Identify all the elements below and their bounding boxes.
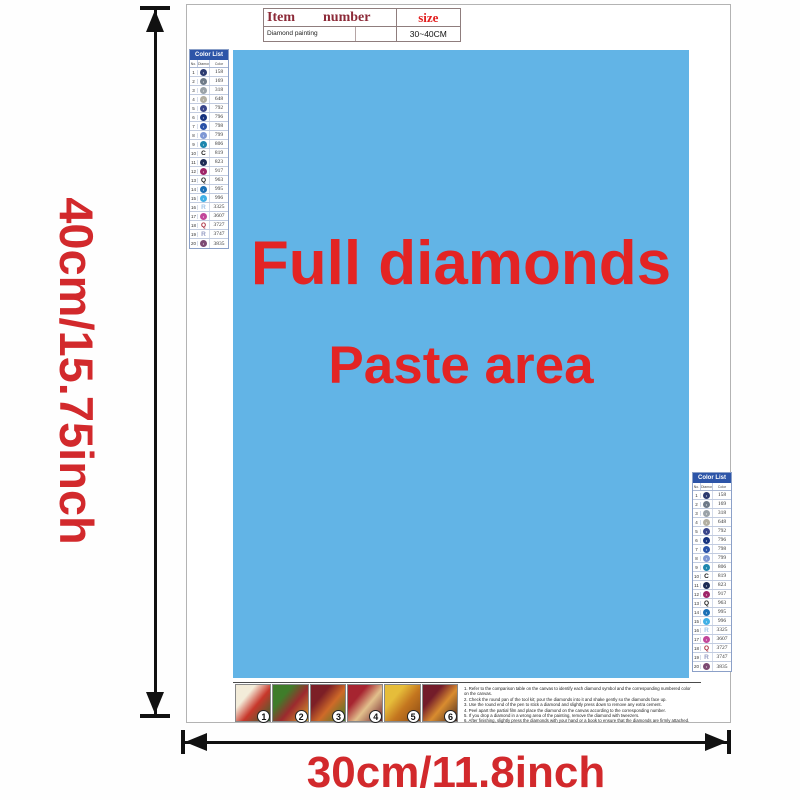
- column-diamond-label: Diamond: [701, 483, 713, 490]
- column-color-label: Color: [713, 483, 731, 490]
- color-row: 1•158: [190, 68, 228, 77]
- paste-area-title-line2: Paste area: [233, 335, 689, 396]
- dmc-color-code: 917: [210, 168, 228, 174]
- color-row-number: 5: [693, 529, 701, 534]
- diamond-symbol-icon: •: [701, 590, 713, 598]
- color-row: 6•796: [693, 536, 731, 545]
- color-row: 13Q963: [190, 176, 228, 185]
- diamond-symbol-icon: •: [701, 608, 713, 616]
- info-table-header-row: Item number size: [264, 9, 460, 27]
- diamond-symbol-icon: Q: [198, 176, 210, 184]
- diamond-letter-symbol: Q: [201, 176, 206, 185]
- color-row-number: 18: [693, 646, 701, 651]
- dmc-color-code: 648: [713, 519, 731, 525]
- color-row: 16R3325: [693, 626, 731, 635]
- step-thumbnail: 2: [272, 684, 308, 722]
- dmc-color-code: 3835: [210, 241, 228, 247]
- diamond-color-dot: •: [200, 186, 207, 193]
- step-number-badge: 6: [444, 710, 457, 723]
- diamond-color-dot: •: [703, 510, 710, 517]
- dmc-color-code: 796: [713, 537, 731, 543]
- color-row-number: 12: [190, 169, 198, 174]
- product-dimension-diagram: 40cm/15.75inch Item number size Diamond …: [0, 0, 800, 800]
- color-row: 10C819: [693, 572, 731, 581]
- color-row: 11•823: [190, 158, 228, 167]
- color-row: 7•798: [693, 545, 731, 554]
- color-row: 2•169: [693, 500, 731, 509]
- dmc-color-code: 796: [210, 114, 228, 120]
- diamond-color-dot: •: [200, 105, 207, 112]
- diamond-color-dot: •: [200, 240, 207, 247]
- diamond-symbol-icon: •: [701, 635, 713, 643]
- diamond-color-dot: •: [703, 582, 710, 589]
- bottom-strip-divider: [233, 682, 701, 683]
- diamond-color-dot: •: [200, 69, 207, 76]
- color-row-number: 7: [190, 124, 198, 129]
- color-list-left: Color List No. Diamond Color 1•1582•1693…: [189, 49, 229, 249]
- color-row-number: 15: [693, 619, 701, 624]
- color-row-number: 13: [190, 178, 198, 183]
- diamond-color-dot: •: [200, 141, 207, 148]
- color-row-number: 4: [190, 97, 198, 102]
- dmc-color-code: 996: [713, 618, 731, 624]
- diamond-letter-symbol: C: [704, 572, 709, 581]
- color-row-number: 16: [190, 205, 198, 210]
- diamond-symbol-icon: •: [198, 86, 210, 94]
- diamond-symbol-icon: R: [701, 626, 713, 634]
- color-row-number: 11: [190, 160, 198, 165]
- diamond-color-dot: •: [703, 609, 710, 616]
- color-row: 4•648: [190, 95, 228, 104]
- item-size-cell: 30~40CM: [396, 27, 460, 41]
- diamond-symbol-icon: •: [198, 95, 210, 103]
- color-row-number: 8: [693, 556, 701, 561]
- diamond-symbol-icon: •: [701, 545, 713, 553]
- diamond-symbol-icon: Q: [198, 221, 210, 229]
- color-list-title: Color List: [693, 473, 731, 483]
- color-list-title: Color List: [190, 50, 228, 60]
- diamond-color-dot: •: [200, 123, 207, 130]
- diamond-symbol-icon: •: [198, 131, 210, 139]
- color-row: 5•792: [190, 104, 228, 113]
- diamond-letter-symbol: R: [704, 626, 709, 635]
- color-row-number: 17: [693, 637, 701, 642]
- dmc-color-code: 963: [713, 600, 731, 606]
- color-row: 17•3607: [693, 635, 731, 644]
- diamond-symbol-icon: •: [701, 491, 713, 499]
- color-row-number: 6: [693, 538, 701, 543]
- color-row-number: 10: [693, 574, 701, 579]
- dmc-color-code: 995: [210, 186, 228, 192]
- color-row: 3•318: [693, 509, 731, 518]
- color-row: 3•318: [190, 86, 228, 95]
- color-row: 18Q3727: [693, 644, 731, 653]
- color-row: 15•996: [693, 617, 731, 626]
- diamond-letter-symbol: Q: [704, 644, 709, 653]
- color-list-rows: 1•1582•1693•3184•6485•7926•7967•7988•799…: [693, 491, 731, 671]
- color-row: 17•3607: [190, 212, 228, 221]
- diamond-letter-symbol: R: [201, 203, 206, 212]
- diamond-symbol-icon: •: [198, 158, 210, 166]
- full-diamond-paste-area: Full diamonds Paste area: [233, 50, 689, 678]
- diamond-color-dot: •: [200, 87, 207, 94]
- diamond-symbol-icon: •: [701, 563, 713, 571]
- info-table-body-row: Diamond painting 30~40CM: [264, 27, 460, 41]
- color-row-number: 1: [190, 70, 198, 75]
- step-thumbnail: 3: [310, 684, 346, 722]
- dmc-color-code: 3607: [713, 636, 731, 642]
- color-row: 13Q963: [693, 599, 731, 608]
- width-dimension-label: 30cm/11.8inch: [181, 748, 731, 798]
- column-diamond-label: Diamond: [198, 60, 210, 67]
- diamond-symbol-icon: •: [198, 122, 210, 130]
- diamond-symbol-icon: •: [198, 140, 210, 148]
- color-row-number: 12: [693, 592, 701, 597]
- dmc-color-code: 3727: [713, 645, 731, 651]
- color-row: 9•806: [190, 140, 228, 149]
- height-dimension-label: 40cm/15.75inch: [42, 41, 104, 701]
- item-info-table: Item number size Diamond painting 30~40C…: [263, 8, 461, 42]
- color-row-number: 17: [190, 214, 198, 219]
- diamond-color-dot: •: [200, 132, 207, 139]
- step-thumbnail: 4: [347, 684, 383, 722]
- diamond-color-dot: •: [703, 492, 710, 499]
- dmc-color-code: 963: [210, 177, 228, 183]
- arrow-down-head-icon: [146, 692, 164, 714]
- color-list-column-headers: No. Diamond Color: [693, 483, 731, 491]
- diamond-color-dot: •: [200, 96, 207, 103]
- color-row-number: 9: [190, 142, 198, 147]
- diamond-color-dot: •: [200, 213, 207, 220]
- diamond-symbol-icon: •: [701, 527, 713, 535]
- color-row-number: 9: [693, 565, 701, 570]
- dmc-color-code: 318: [713, 510, 731, 516]
- diamond-symbol-icon: •: [198, 113, 210, 121]
- color-row-number: 20: [693, 664, 701, 669]
- diamond-symbol-icon: •: [198, 104, 210, 112]
- diamond-symbol-icon: R: [198, 230, 210, 238]
- diamond-color-dot: •: [703, 555, 710, 562]
- dmc-color-code: 823: [210, 159, 228, 165]
- column-no-label: No.: [190, 60, 198, 67]
- dmc-color-code: 3607: [210, 213, 228, 219]
- diamond-symbol-icon: •: [701, 518, 713, 526]
- arrow-horizontal-line: [185, 741, 727, 744]
- color-list-rows: 1•1582•1693•3184•6485•7926•7967•7988•799…: [190, 68, 228, 248]
- diamond-symbol-icon: •: [701, 509, 713, 517]
- diamond-color-dot: •: [703, 537, 710, 544]
- color-row-number: 3: [693, 511, 701, 516]
- column-color-label: Color: [210, 60, 228, 67]
- step-thumbnail: 6: [422, 684, 458, 722]
- paste-area-title-line1: Full diamonds: [233, 228, 689, 299]
- column-no-label: No.: [693, 483, 701, 490]
- step-thumbnail: 5: [384, 684, 420, 722]
- diamond-symbol-icon: •: [701, 554, 713, 562]
- diamond-symbol-icon: C: [701, 572, 713, 580]
- color-row: 19R3747: [693, 653, 731, 662]
- diamond-symbol-icon: •: [701, 581, 713, 589]
- diamond-symbol-icon: R: [701, 653, 713, 661]
- dmc-color-code: 996: [210, 195, 228, 201]
- color-row-number: 1: [693, 493, 701, 498]
- diamond-color-dot: •: [703, 528, 710, 535]
- color-row-number: 3: [190, 88, 198, 93]
- arrow-bottom-cap: [140, 714, 170, 718]
- diamond-color-dot: •: [200, 195, 207, 202]
- dmc-color-code: 3747: [210, 231, 228, 237]
- diamond-color-dot: •: [200, 114, 207, 121]
- diamond-letter-symbol: R: [704, 653, 709, 662]
- color-row-number: 5: [190, 106, 198, 111]
- instruction-line: 6. After finishing, slightly press the d…: [464, 718, 694, 723]
- instruction-line: 1. Refer to the comparison table on the …: [464, 686, 694, 697]
- color-row: 20•3835: [693, 662, 731, 671]
- dmc-color-code: 799: [210, 132, 228, 138]
- color-row-number: 16: [693, 628, 701, 633]
- color-row-number: 14: [693, 610, 701, 615]
- diamond-color-dot: •: [703, 663, 710, 670]
- diamond-color-dot: •: [703, 519, 710, 526]
- diamond-symbol-icon: •: [198, 212, 210, 220]
- dmc-color-code: 799: [713, 555, 731, 561]
- color-row: 20•3835: [190, 239, 228, 248]
- diamond-color-dot: •: [703, 618, 710, 625]
- diamond-color-dot: •: [200, 159, 207, 166]
- diamond-symbol-icon: •: [198, 77, 210, 85]
- dmc-color-code: 792: [713, 528, 731, 534]
- dmc-color-code: 169: [713, 501, 731, 507]
- canvas-sheet: Item number size Diamond painting 30~40C…: [186, 4, 731, 723]
- dmc-color-code: 819: [713, 573, 731, 579]
- color-row-number: 6: [190, 115, 198, 120]
- color-row-number: 13: [693, 601, 701, 606]
- item-name-cell: Diamond painting: [264, 27, 355, 41]
- diamond-symbol-icon: C: [198, 149, 210, 157]
- diamond-symbol-icon: •: [198, 239, 210, 248]
- color-row-number: 2: [693, 502, 701, 507]
- color-row-number: 11: [693, 583, 701, 588]
- color-row: 1•158: [693, 491, 731, 500]
- color-row-number: 20: [190, 241, 198, 246]
- color-row-number: 2: [190, 79, 198, 84]
- diamond-symbol-icon: •: [198, 167, 210, 175]
- step-thumbnails: 123456: [235, 684, 459, 722]
- height-dimension-arrow: [140, 6, 170, 718]
- dmc-color-code: 792: [210, 105, 228, 111]
- step-number-badge: 1: [257, 710, 270, 723]
- diamond-color-dot: •: [703, 564, 710, 571]
- header-number-label: number: [323, 10, 370, 26]
- diamond-symbol-icon: Q: [701, 644, 713, 652]
- diamond-color-dot: •: [703, 591, 710, 598]
- diamond-symbol-icon: •: [198, 68, 210, 76]
- color-row: 8•799: [190, 131, 228, 140]
- diamond-letter-symbol: Q: [704, 599, 709, 608]
- step-number-badge: 4: [369, 710, 382, 723]
- dmc-color-code: 806: [210, 141, 228, 147]
- diamond-symbol-icon: •: [701, 662, 713, 671]
- color-list-right: Color List No. Diamond Color 1•1582•1693…: [692, 472, 732, 672]
- dmc-color-code: 917: [713, 591, 731, 597]
- color-row: 14•995: [190, 185, 228, 194]
- color-row: 12•917: [190, 167, 228, 176]
- dmc-color-code: 798: [713, 546, 731, 552]
- color-row: 15•996: [190, 194, 228, 203]
- diamond-color-dot: •: [703, 636, 710, 643]
- diamond-symbol-icon: Q: [701, 599, 713, 607]
- diamond-symbol-icon: •: [701, 617, 713, 625]
- color-row: 2•169: [190, 77, 228, 86]
- dmc-color-code: 318: [210, 87, 228, 93]
- color-row: 7•798: [190, 122, 228, 131]
- color-row-number: 14: [190, 187, 198, 192]
- color-row: 19R3747: [190, 230, 228, 239]
- diamond-letter-symbol: C: [201, 149, 206, 158]
- header-item-label: Item: [267, 10, 295, 26]
- dmc-color-code: 648: [210, 96, 228, 102]
- dmc-color-code: 3727: [210, 222, 228, 228]
- color-row: 16R3325: [190, 203, 228, 212]
- step-number-badge: 5: [407, 710, 420, 723]
- item-number-cell: [355, 27, 396, 41]
- instruction-line: 3. Use the round end of the pen to stick…: [464, 702, 694, 707]
- dmc-color-code: 819: [210, 150, 228, 156]
- dmc-color-code: 995: [713, 609, 731, 615]
- diamond-color-dot: •: [200, 168, 207, 175]
- color-row-number: 19: [693, 655, 701, 660]
- diamond-color-dot: •: [703, 501, 710, 508]
- diamond-letter-symbol: Q: [201, 221, 206, 230]
- dmc-color-code: 158: [210, 69, 228, 75]
- color-row: 8•799: [693, 554, 731, 563]
- dmc-color-code: 3747: [713, 654, 731, 660]
- color-row: 14•995: [693, 608, 731, 617]
- color-row-number: 7: [693, 547, 701, 552]
- dmc-color-code: 798: [210, 123, 228, 129]
- color-row: 18Q3727: [190, 221, 228, 230]
- info-table-header-item-number: Item number: [264, 9, 396, 26]
- color-row-number: 15: [190, 196, 198, 201]
- step-number-badge: 2: [295, 710, 308, 723]
- color-row-number: 18: [190, 223, 198, 228]
- dmc-color-code: 3835: [713, 664, 731, 670]
- dmc-color-code: 3325: [713, 627, 731, 633]
- color-row: 10C819: [190, 149, 228, 158]
- instructions-text: 1. Refer to the comparison table on the …: [464, 686, 694, 724]
- dmc-color-code: 3325: [210, 204, 228, 210]
- color-row-number: 4: [693, 520, 701, 525]
- dmc-color-code: 169: [210, 78, 228, 84]
- diamond-letter-symbol: R: [201, 230, 206, 239]
- color-row-number: 8: [190, 133, 198, 138]
- diamond-symbol-icon: •: [198, 185, 210, 193]
- color-row: 6•796: [190, 113, 228, 122]
- diamond-symbol-icon: •: [198, 194, 210, 202]
- color-row: 12•917: [693, 590, 731, 599]
- color-row: 4•648: [693, 518, 731, 527]
- dmc-color-code: 806: [713, 564, 731, 570]
- diamond-color-dot: •: [200, 78, 207, 85]
- color-row: 5•792: [693, 527, 731, 536]
- diamond-symbol-icon: •: [701, 500, 713, 508]
- color-row: 9•806: [693, 563, 731, 572]
- dmc-color-code: 158: [713, 492, 731, 498]
- diamond-color-dot: •: [703, 546, 710, 553]
- diamond-symbol-icon: R: [198, 203, 210, 211]
- header-size-label: size: [396, 9, 460, 26]
- color-row: 11•823: [693, 581, 731, 590]
- color-row-number: 19: [190, 232, 198, 237]
- step-thumbnail: 1: [235, 684, 271, 722]
- step-number-badge: 3: [332, 710, 345, 723]
- diamond-symbol-icon: •: [701, 536, 713, 544]
- color-list-column-headers: No. Diamond Color: [190, 60, 228, 68]
- dmc-color-code: 823: [713, 582, 731, 588]
- arrow-vertical-line: [154, 10, 157, 714]
- color-row-number: 10: [190, 151, 198, 156]
